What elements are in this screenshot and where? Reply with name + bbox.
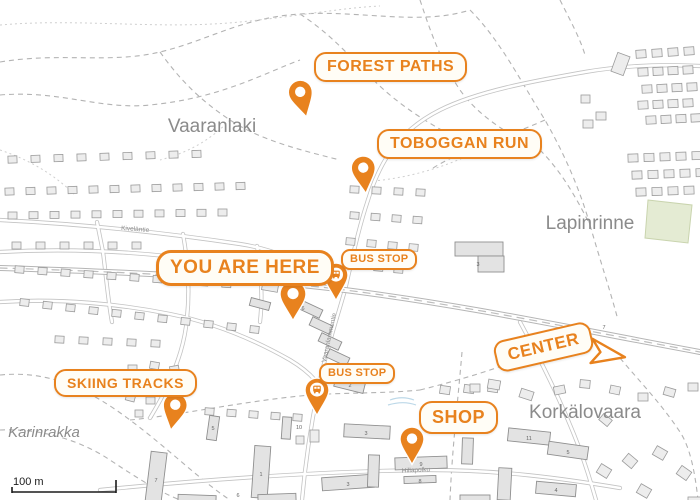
skiing-tracks-label: SKIING TRACKS bbox=[54, 369, 197, 397]
you-are-here-label: YOU ARE HERE bbox=[156, 250, 334, 286]
bus-stop-label: BUS STOP bbox=[341, 249, 417, 270]
svg-text:Karinrakka: Karinrakka bbox=[8, 424, 80, 441]
scale-bar-label: 100 m bbox=[13, 476, 44, 488]
bus-stop-label: BUS STOP bbox=[319, 363, 395, 384]
green-area bbox=[645, 200, 692, 243]
svg-text:10: 10 bbox=[296, 425, 302, 431]
svg-text:8: 8 bbox=[418, 479, 421, 485]
svg-text:Lapinrinne: Lapinrinne bbox=[546, 213, 635, 234]
contour-lines bbox=[0, 6, 480, 195]
svg-text:5: 5 bbox=[211, 426, 214, 432]
svg-text:Vaaranlaki: Vaaranlaki bbox=[168, 116, 256, 137]
resort-map: 325173398116451067 KiveläntieVaaranlamme… bbox=[0, 0, 700, 500]
svg-text:3: 3 bbox=[346, 482, 349, 488]
buildings-layer bbox=[5, 47, 700, 500]
svg-text:Kiveläntie: Kiveläntie bbox=[121, 225, 150, 234]
stream-lines bbox=[388, 398, 416, 405]
svg-text:6: 6 bbox=[236, 493, 239, 499]
svg-text:1: 1 bbox=[259, 472, 262, 478]
forest-paths-label: FOREST PATHS bbox=[314, 52, 467, 82]
you-are-here-pin-icon[interactable] bbox=[279, 280, 307, 322]
shop-pin-icon[interactable] bbox=[399, 426, 425, 466]
svg-text:3: 3 bbox=[476, 262, 479, 268]
svg-text:3: 3 bbox=[364, 431, 367, 437]
svg-text:2: 2 bbox=[348, 383, 351, 389]
svg-text:Korkälovaara: Korkälovaara bbox=[529, 402, 641, 423]
svg-text:7: 7 bbox=[154, 478, 157, 484]
toboggan-run-pin-icon[interactable] bbox=[349, 154, 379, 196]
svg-text:11: 11 bbox=[526, 436, 532, 442]
svg-text:5: 5 bbox=[566, 450, 569, 456]
toboggan-run-label: TOBOGGAN RUN bbox=[377, 129, 542, 159]
svg-text:Hillapolku: Hillapolku bbox=[402, 466, 431, 474]
svg-text:7: 7 bbox=[602, 325, 605, 331]
svg-text:4: 4 bbox=[554, 488, 557, 494]
shop-label: SHOP bbox=[419, 401, 498, 434]
